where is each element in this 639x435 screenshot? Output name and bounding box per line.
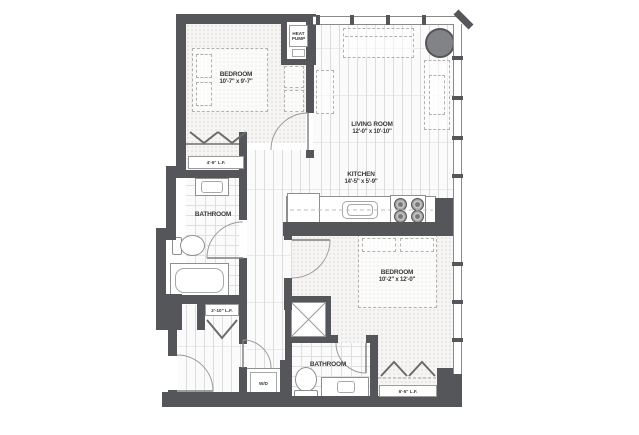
wall-left-upper	[176, 14, 186, 170]
heat-pump-label: HEAT PUMP	[289, 25, 308, 47]
room-dims: 14'-5" x 5'-9"	[344, 179, 377, 187]
bed1-pillow-bottom	[196, 82, 212, 106]
room-dims: 12'-0" x 10'-10"	[351, 129, 393, 137]
room-dims: 10'-2" x 12'-0"	[379, 277, 415, 285]
wall-bathroom2-right	[370, 343, 378, 398]
wall-bathroom1-top	[166, 170, 247, 178]
room-name: BATHROOM	[310, 361, 346, 369]
closet1-front-line	[186, 143, 246, 145]
heat-pump-unit	[292, 49, 305, 57]
wall-bathroom2-top-left	[331, 335, 338, 343]
label-bathroom1: BATHROOM	[195, 211, 231, 219]
wall-bathroom2-left	[285, 343, 292, 398]
armchair-outline	[316, 70, 334, 114]
label-bedroom1: BEDROOM 10'-7" x 9'-7"	[219, 71, 252, 87]
closet-label-text: 6'-5" L.F.	[399, 389, 418, 394]
room-name: LIVING ROOM	[351, 121, 393, 129]
label-bathroom2: BATHROOM	[310, 361, 346, 369]
closet-label-text: 4'-6" L.F.	[207, 160, 226, 165]
sofa-outline	[343, 28, 414, 58]
structural-column	[425, 28, 455, 58]
wall-left-entry-upper	[168, 326, 177, 356]
wall-bathroom2-top-right	[366, 335, 378, 343]
wall-bathroom1-right-upper	[239, 178, 247, 220]
room-name: BATHROOM	[195, 211, 231, 219]
washer-dryer-label: W/D	[246, 381, 281, 387]
wall-bottom-left	[162, 392, 292, 407]
washer-dryer-label-text: W/D	[259, 381, 268, 386]
closet-label-bedroom1: 4'-6" L.F.	[188, 156, 244, 169]
wardrobe-lower	[284, 90, 304, 112]
wall-hall-jamb	[239, 367, 247, 407]
wall-entry-closet-left	[197, 298, 205, 330]
tv-outline	[429, 75, 445, 115]
room-dims: 10'-7" x 9'-7"	[219, 79, 252, 87]
wall-entry-closet-right	[239, 304, 247, 344]
wall-left-lower	[156, 228, 166, 302]
closet-label-entry: 2'-10" L.F.	[205, 304, 239, 316]
wall-bedroom2-left-lower	[284, 278, 292, 310]
window-right	[453, 24, 462, 374]
label-kitchen: KITCHEN 14'-5" x 5'-9"	[344, 171, 377, 187]
range-stove	[390, 195, 426, 223]
bed2-pillow-left	[362, 238, 396, 252]
kitchen-sink-basin	[347, 204, 373, 216]
room-name: BEDROOM	[219, 71, 252, 79]
wall-bathroom1-bottom	[166, 295, 247, 304]
wall-bedroom2-left-upper	[284, 222, 292, 240]
bed1-pillow-top	[196, 54, 212, 78]
sofa-back-line	[345, 36, 412, 37]
window-top	[313, 16, 458, 25]
wall-below-counter	[283, 222, 437, 236]
bathroom1-sink	[201, 181, 223, 193]
toilet1-bowl	[180, 235, 205, 256]
room-name: BEDROOM	[379, 269, 415, 277]
floor-entry	[178, 305, 247, 393]
heat-pump-label-text: HEAT PUMP	[290, 31, 307, 42]
shower-pan	[291, 302, 326, 337]
label-bedroom2: BEDROOM 10'-2" x 12'-0"	[379, 269, 415, 285]
room-name: KITCHEN	[344, 171, 377, 179]
label-living-room: LIVING ROOM 12'-0" x 10'-10"	[351, 121, 393, 137]
bed2-pillow-right	[400, 238, 434, 252]
floor-plan: 4'-6" L.F. 2'-10" L.F. 6'-5" L.F. HEAT P…	[0, 0, 639, 435]
wardrobe-upper	[284, 66, 304, 88]
bathtub-inner	[175, 268, 224, 293]
wall-bedroom1-right-cap	[306, 150, 314, 158]
closet-label-bedroom2: 6'-5" L.F.	[379, 385, 437, 397]
closet-label-text: 2'-10" L.F.	[211, 308, 232, 313]
refrigerator	[287, 193, 320, 223]
bathroom2-sink	[337, 381, 355, 393]
toilet2-bowl	[295, 367, 317, 392]
